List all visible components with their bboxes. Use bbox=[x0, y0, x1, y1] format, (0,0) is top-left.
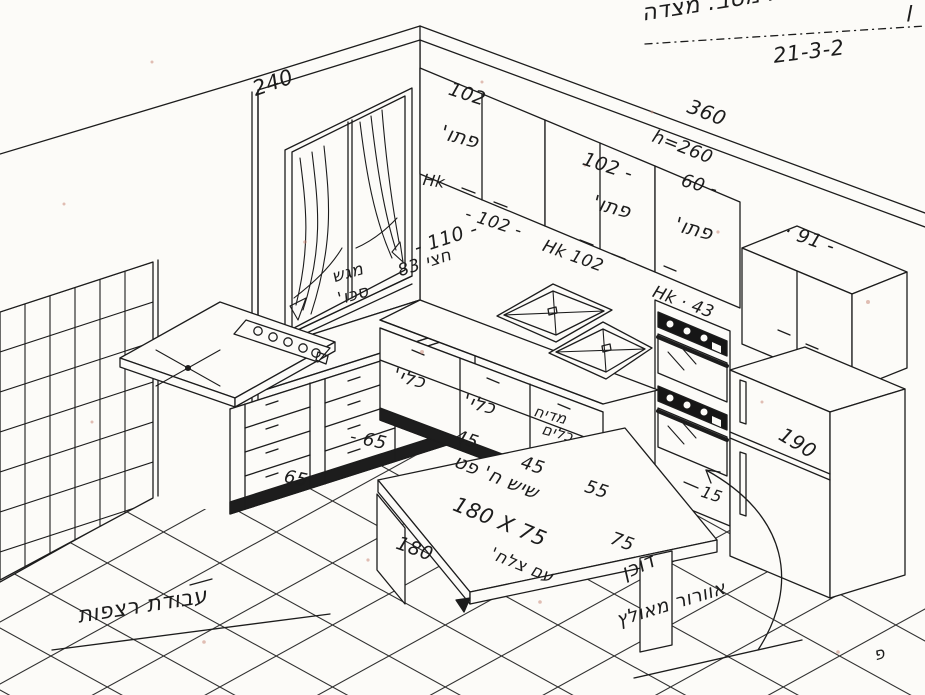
tiled-wall bbox=[0, 260, 158, 580]
table-foot bbox=[456, 598, 470, 612]
annotation-title-fragment: ן bbox=[906, 0, 913, 22]
annotation-toe-65a: 65 bbox=[282, 468, 309, 491]
annotation-hk-left: Hk bbox=[422, 172, 446, 191]
fridge bbox=[730, 347, 905, 598]
kitchen-sketch-page: תוכנית מטב. מצדה ן 21-3-2 240 102 פתו' H… bbox=[0, 0, 925, 695]
